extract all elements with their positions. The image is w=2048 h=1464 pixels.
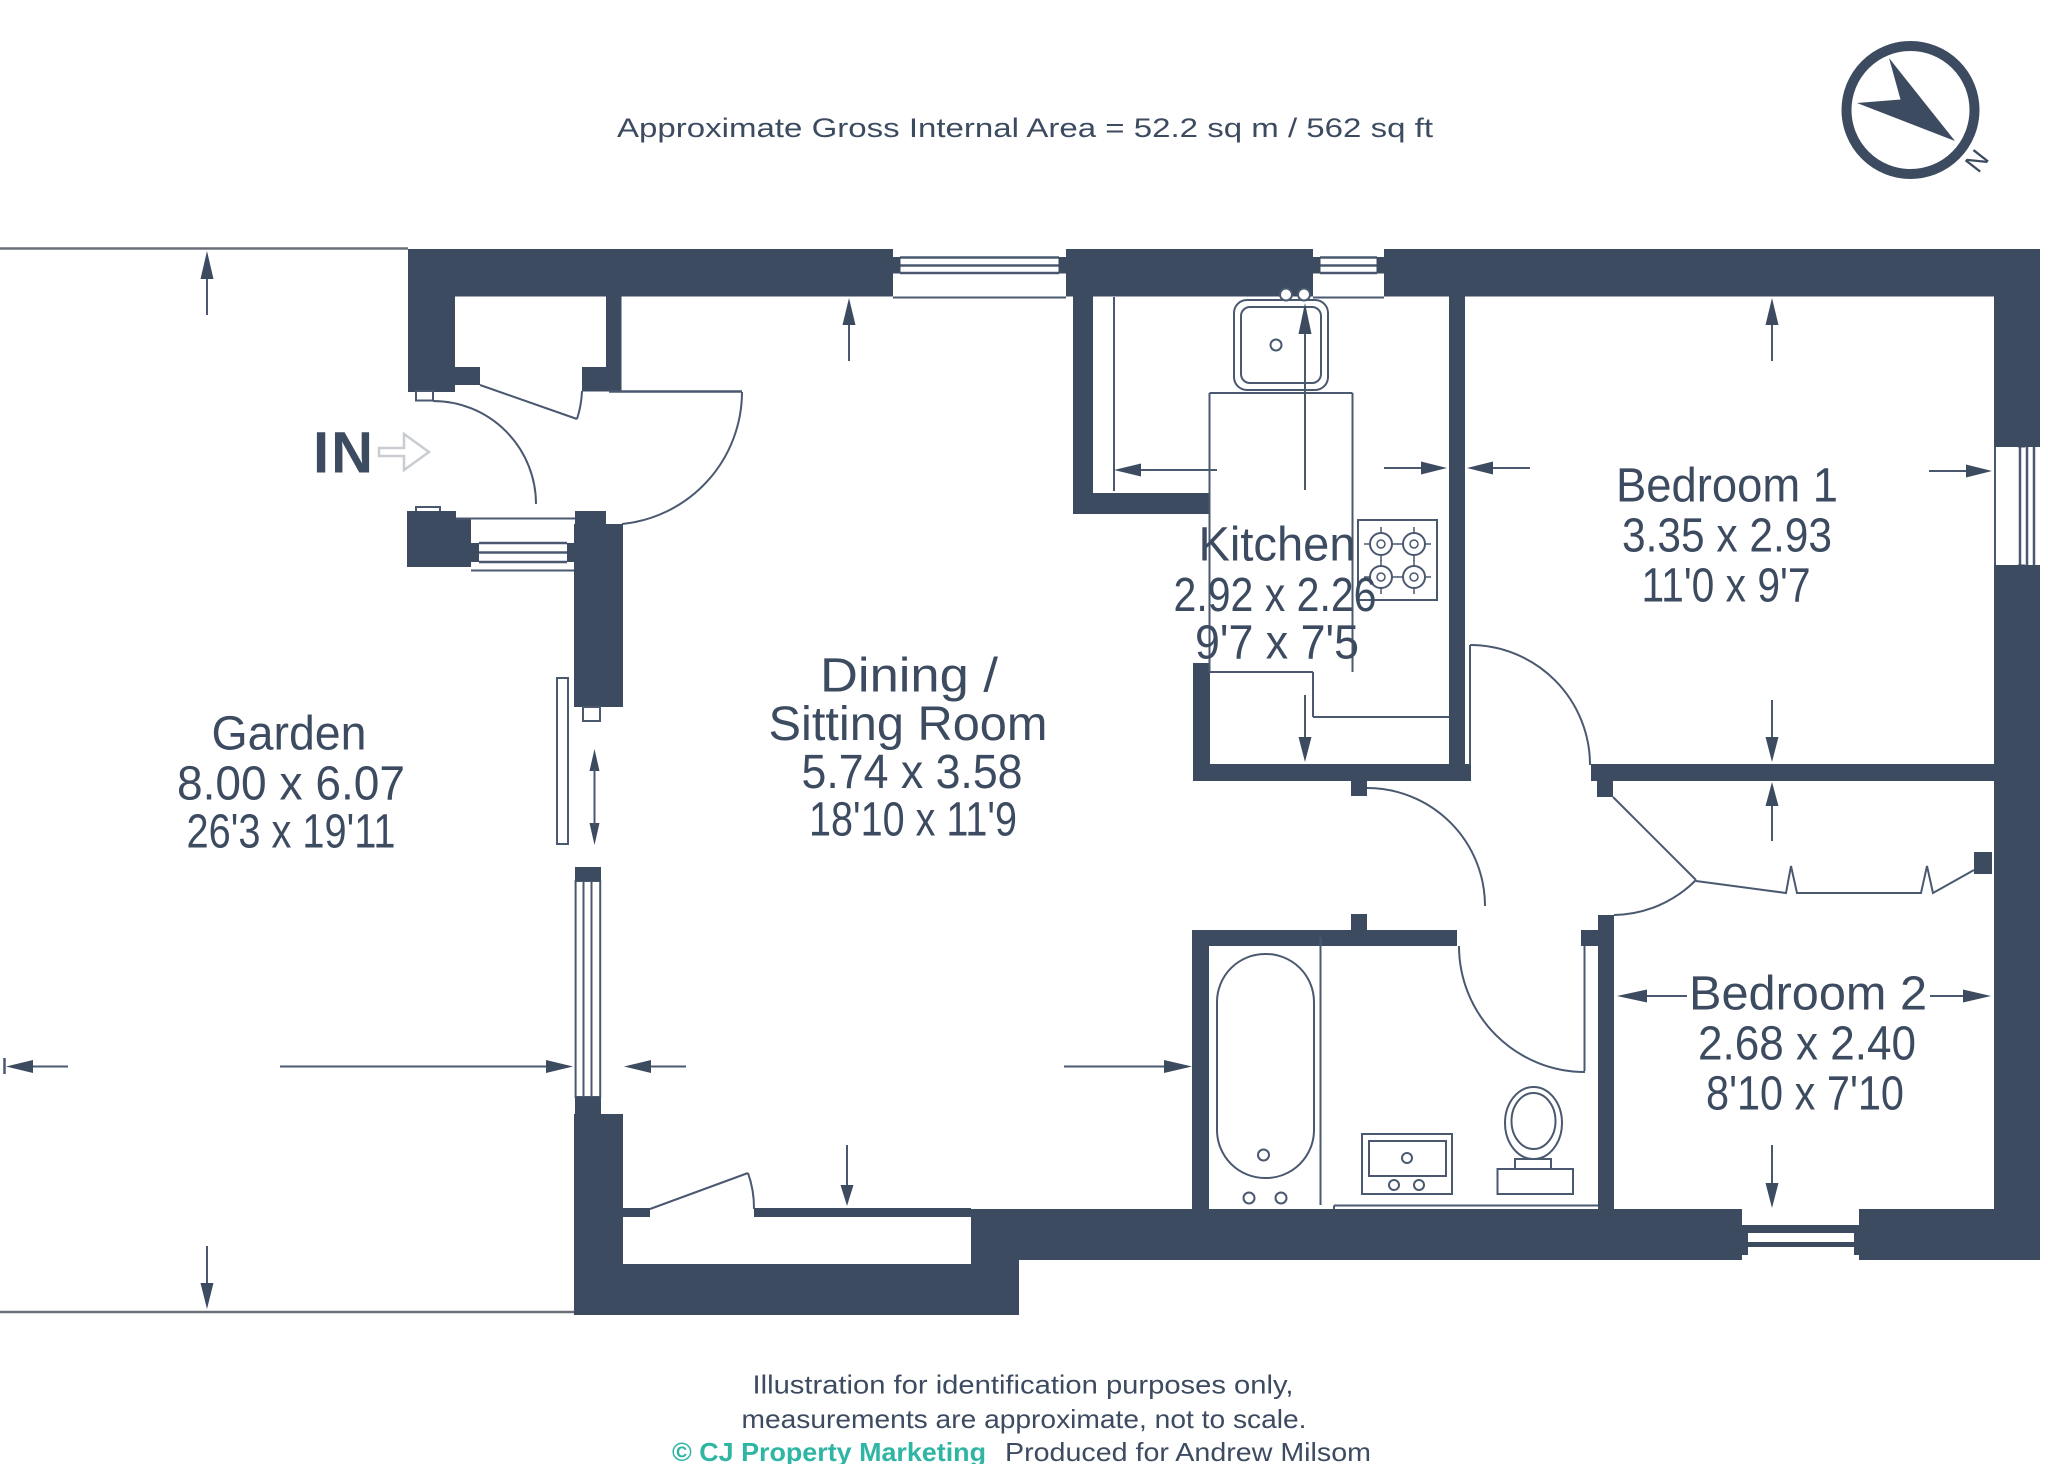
svg-text:Sitting Room: Sitting Room bbox=[769, 698, 1048, 751]
svg-text:8.00 x 6.07: 8.00 x 6.07 bbox=[177, 758, 405, 811]
svg-text:Approximate Gross Internal Are: Approximate Gross Internal Area = 52.2 s… bbox=[617, 113, 1434, 143]
svg-text:2.92 x 2.26: 2.92 x 2.26 bbox=[1174, 569, 1377, 622]
svg-text:9'7 x 7'5: 9'7 x 7'5 bbox=[1195, 617, 1359, 670]
svg-text:IN: IN bbox=[313, 421, 375, 486]
svg-text:2.68 x 2.40: 2.68 x 2.40 bbox=[1698, 1018, 1916, 1071]
svg-text:Produced for Andrew Milsom: Produced for Andrew Milsom bbox=[1005, 1437, 1371, 1464]
svg-text:Garden: Garden bbox=[212, 708, 367, 761]
svg-text:Kitchen: Kitchen bbox=[1199, 519, 1356, 572]
svg-text:Illustration for identificatio: Illustration for identification purposes… bbox=[753, 1370, 1294, 1400]
svg-text:measurements are approximate,: measurements are approximate, not to sca… bbox=[742, 1404, 1307, 1434]
svg-text:Bedroom 1: Bedroom 1 bbox=[1616, 460, 1838, 513]
svg-text:11'0 x 9'7: 11'0 x 9'7 bbox=[1642, 560, 1811, 613]
svg-text:Bedroom 2: Bedroom 2 bbox=[1689, 968, 1927, 1021]
svg-text:© CJ Property Marketing: © CJ Property Marketing bbox=[672, 1437, 986, 1464]
svg-text:8'10 x 7'10: 8'10 x 7'10 bbox=[1706, 1068, 1904, 1121]
svg-text:18'10 x 11'9: 18'10 x 11'9 bbox=[809, 794, 1017, 847]
svg-text:3.35 x 2.93: 3.35 x 2.93 bbox=[1622, 510, 1832, 563]
svg-text:5.74 x 3.58: 5.74 x 3.58 bbox=[802, 746, 1023, 799]
svg-text:Dining /: Dining / bbox=[820, 650, 999, 703]
svg-text:26'3 x 19'11: 26'3 x 19'11 bbox=[187, 806, 396, 859]
